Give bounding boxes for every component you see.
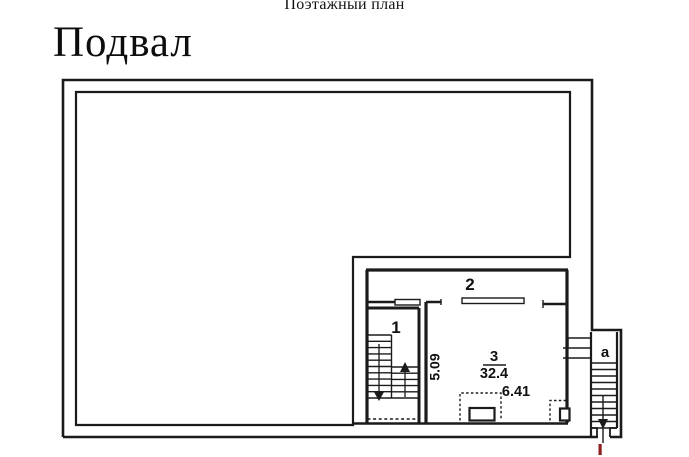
room3-depth-dimension: 5.09 (427, 353, 443, 380)
equipment-base-1 (470, 408, 495, 421)
floor-plan-drawing: 2 1 3 32.4 a 5.09 6.41 (0, 0, 689, 457)
room3-area-label: 32.4 (480, 366, 508, 382)
entrance-mark (599, 444, 602, 455)
room2-label: 2 (465, 275, 474, 294)
stairs-room1 (368, 335, 419, 419)
outer-walls (63, 80, 621, 437)
room3-width-dimension: 6.41 (502, 384, 530, 400)
room3-number-label: 3 (490, 348, 498, 365)
equipment-base-2 (560, 409, 570, 421)
annex-label: a (601, 344, 610, 361)
floor-plan-page: Поэтажный план Подвал (0, 0, 689, 457)
room-labels: 2 1 3 32.4 a (391, 275, 610, 382)
partition-wall (462, 298, 524, 304)
stairs-annex (591, 363, 617, 428)
room1-label: 1 (391, 318, 400, 337)
entrance-jambs (591, 428, 617, 437)
door-opening (395, 300, 420, 306)
dimension-labels: 5.09 6.41 (427, 353, 531, 400)
entrance-arrow-down-icon (598, 396, 608, 443)
